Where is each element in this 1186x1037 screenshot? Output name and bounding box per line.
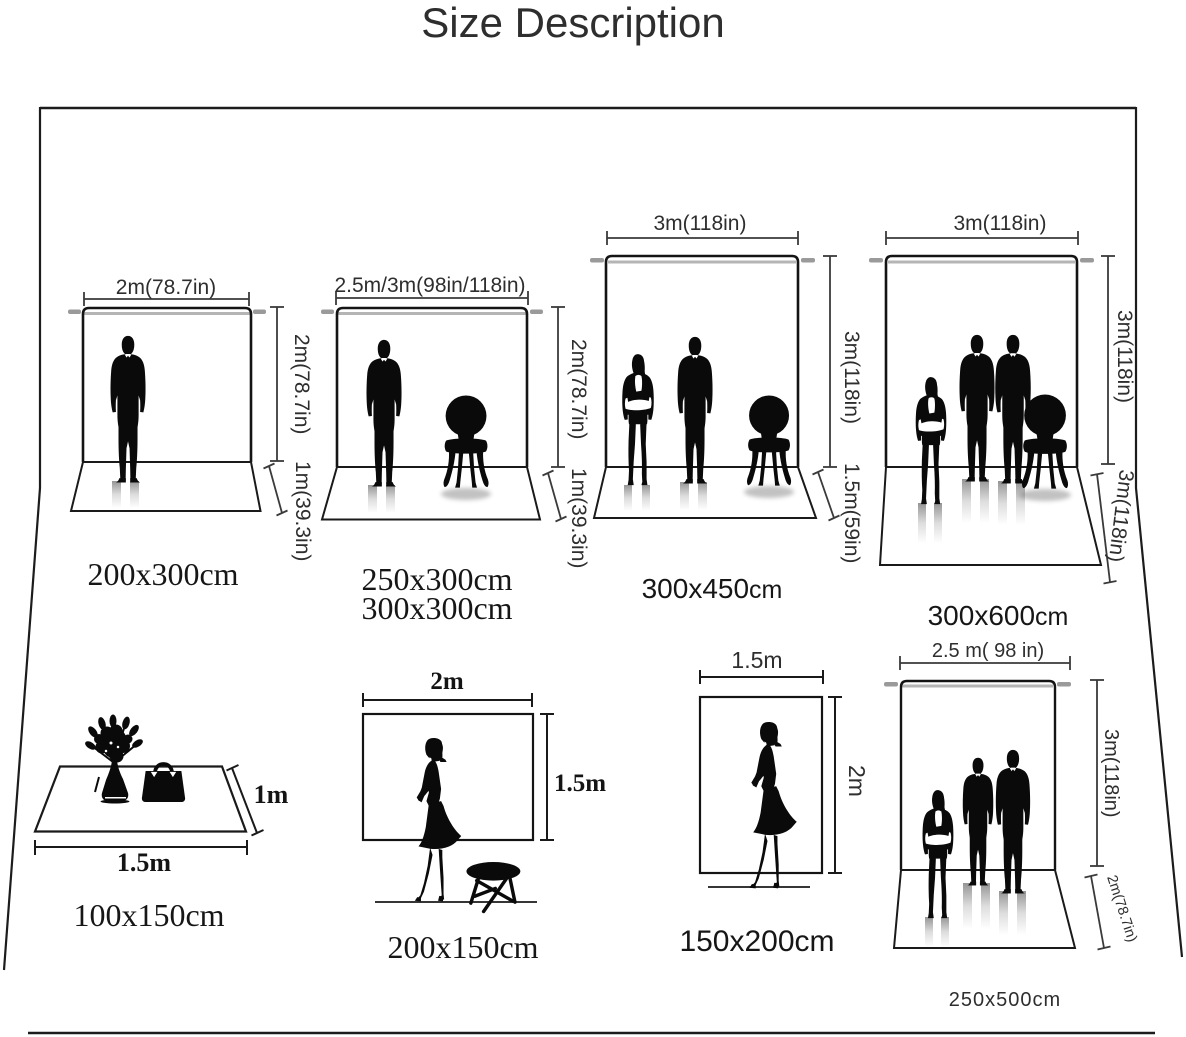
svg-text:3m(118in): 3m(118in) (654, 212, 747, 235)
svg-text:100x150cm: 100x150cm (73, 897, 224, 933)
svg-text:300x600cm: 300x600cm (928, 600, 1069, 631)
svg-text:3m(118in): 3m(118in) (840, 331, 863, 424)
svg-text:1.5m(59in): 1.5m(59in) (840, 463, 863, 563)
svg-text:3m(118in): 3m(118in) (954, 212, 1047, 235)
svg-text:2m(78.7in): 2m(78.7in) (116, 276, 216, 299)
svg-text:2m(78.7in): 2m(78.7in) (290, 334, 313, 434)
svg-text:150x200cm: 150x200cm (679, 925, 834, 958)
svg-text:1m: 1m (254, 780, 289, 809)
svg-text:2.5m/3m(98in/118in): 2.5m/3m(98in/118in) (334, 274, 525, 297)
svg-text:1.5m: 1.5m (117, 848, 172, 877)
svg-text:200x300cm: 200x300cm (87, 556, 238, 592)
svg-text:1.5m: 1.5m (731, 647, 782, 673)
svg-text:2.5 m( 98 in): 2.5 m( 98 in) (932, 640, 1044, 662)
svg-text:300x300cm: 300x300cm (361, 590, 512, 626)
svg-text:200x150cm: 200x150cm (387, 929, 538, 965)
svg-text:2m(78.7in): 2m(78.7in) (567, 339, 590, 439)
svg-text:Size Description: Size Description (421, 0, 724, 46)
svg-text:250x500cm: 250x500cm (949, 989, 1061, 1011)
svg-text:3m(118in): 3m(118in) (1100, 729, 1122, 818)
svg-text:1m(39.3in): 1m(39.3in) (291, 461, 314, 561)
svg-text:2m: 2m (844, 765, 870, 797)
svg-text:2m: 2m (430, 668, 464, 695)
svg-text:1.5m: 1.5m (554, 770, 606, 797)
svg-text:300x450cm: 300x450cm (642, 573, 783, 604)
svg-text:3m(118in): 3m(118in) (1113, 310, 1136, 403)
svg-text:1m(39.3in): 1m(39.3in) (567, 468, 590, 568)
